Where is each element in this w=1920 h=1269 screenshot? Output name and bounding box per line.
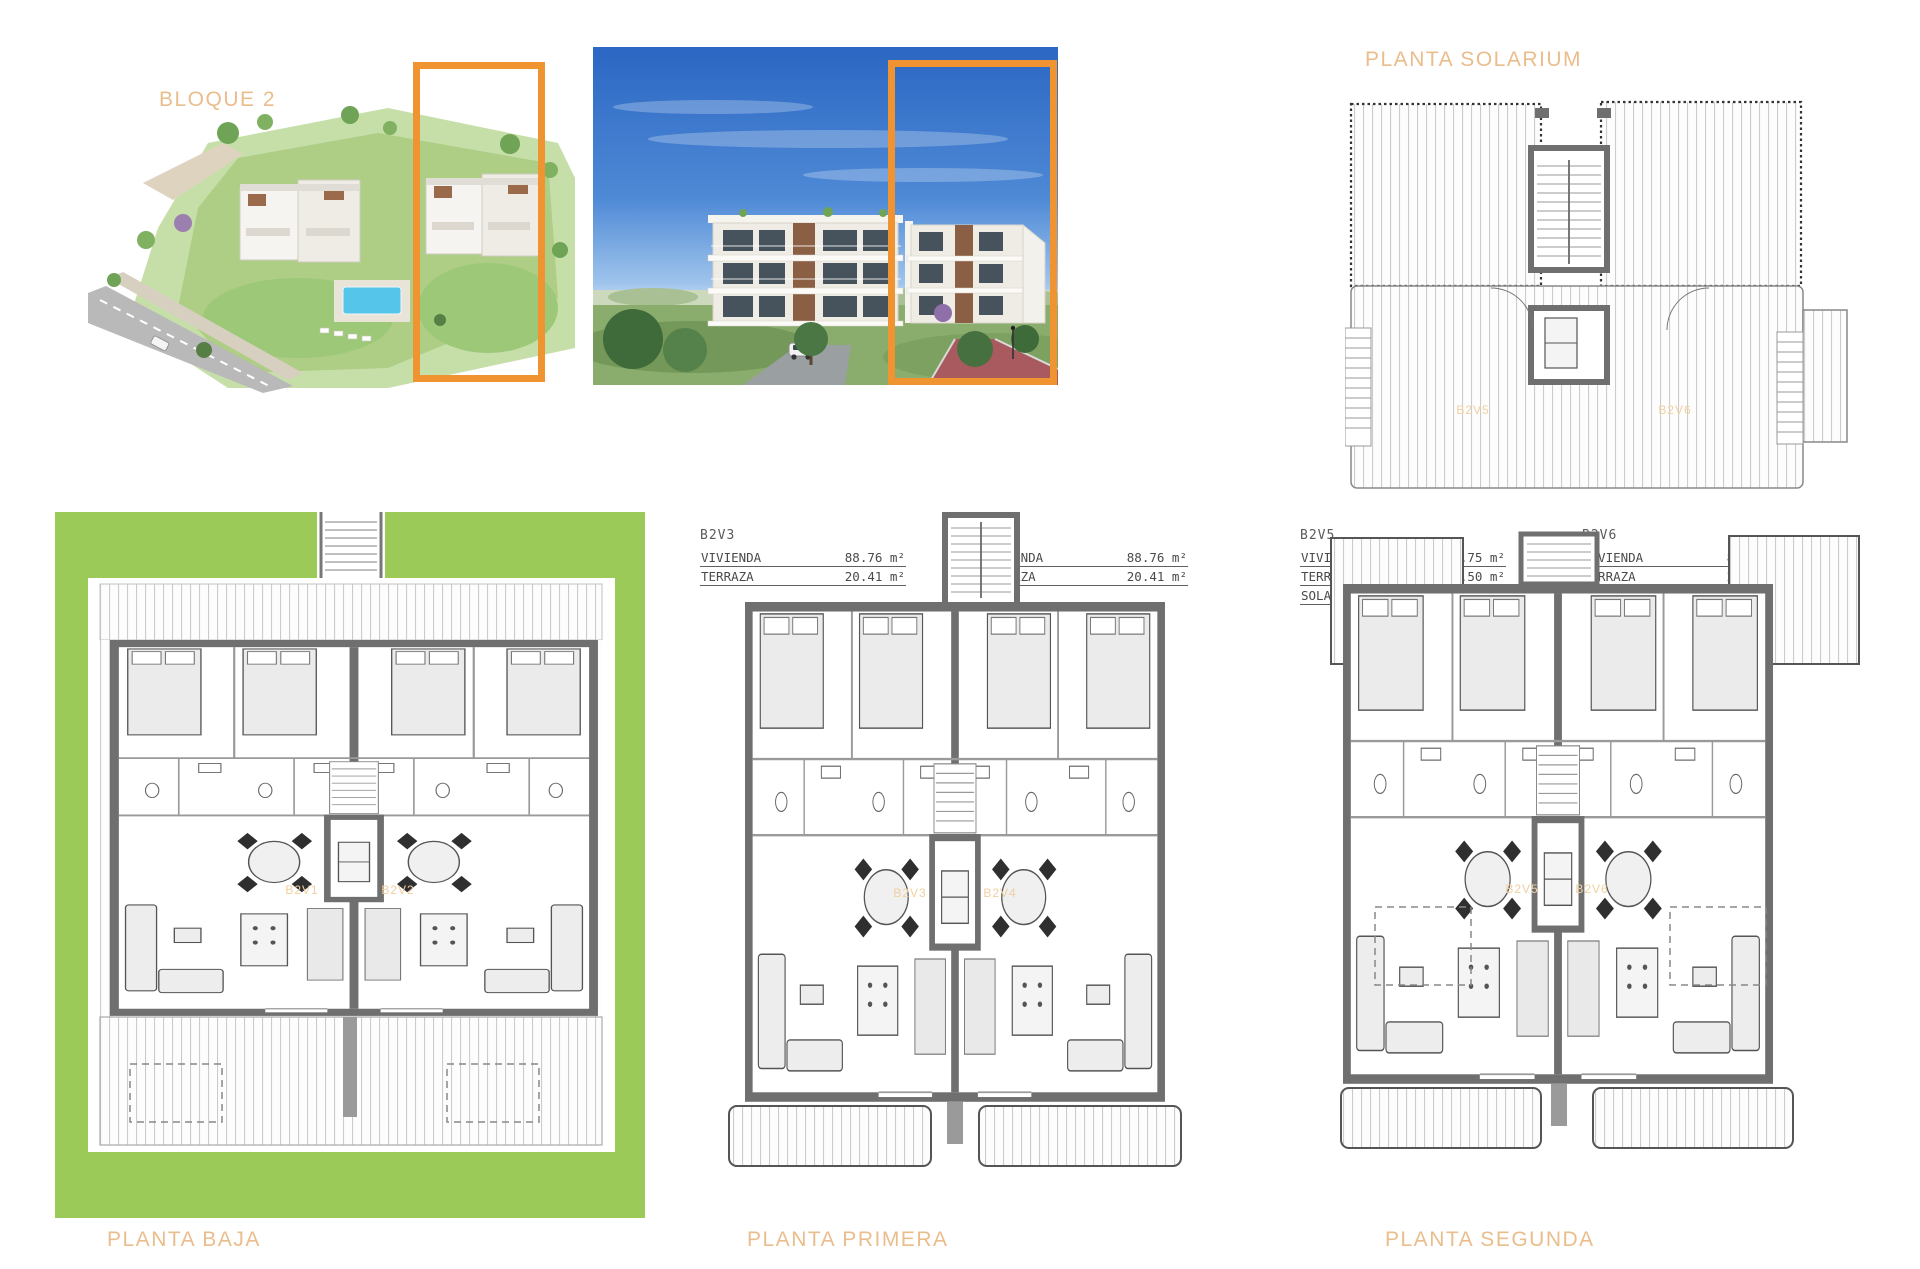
baja-unit-label-right: B2V2	[381, 883, 414, 897]
segunda-unit-label-right: B2V6	[1575, 882, 1608, 896]
highlight-box-aerial	[413, 62, 545, 382]
street-building-main	[708, 207, 903, 326]
planta-segunda-plan: B2V5 B2V6	[1325, 512, 1865, 1172]
planta-baja-title: PLANTA BAJA	[107, 1228, 261, 1252]
planta-solarium-title: PLANTA SOLARIUM	[1365, 48, 1582, 72]
primera-unit-label-left: B2V3	[893, 886, 926, 900]
stair-head	[1521, 534, 1597, 584]
planta-baja-plan: B2V1 B2V2	[55, 512, 645, 1218]
solarium-unit-label-right: B2V6	[1658, 403, 1691, 417]
planta-primera-title: PLANTA PRIMERA	[747, 1228, 949, 1252]
primera-unit-label-right: B2V4	[983, 886, 1016, 900]
baja-unit-label-left: B2V1	[285, 883, 318, 897]
highlight-box-street	[888, 60, 1057, 385]
entry-stairs	[317, 512, 385, 578]
planta-solarium-plan: B2V5 B2V6	[1345, 82, 1855, 497]
planta-primera-plan: B2V3 B2V4	[715, 512, 1195, 1172]
side-steps-left	[1345, 328, 1371, 446]
segunda-unit-label-left: B2V5	[1505, 882, 1538, 896]
solarium-unit-label-left: B2V5	[1456, 403, 1489, 417]
planta-segunda-title: PLANTA SEGUNDA	[1385, 1228, 1595, 1252]
side-steps-right	[1777, 332, 1803, 444]
aerial-building-left	[240, 180, 360, 262]
stair-tower	[945, 515, 1017, 605]
pool	[343, 287, 401, 314]
